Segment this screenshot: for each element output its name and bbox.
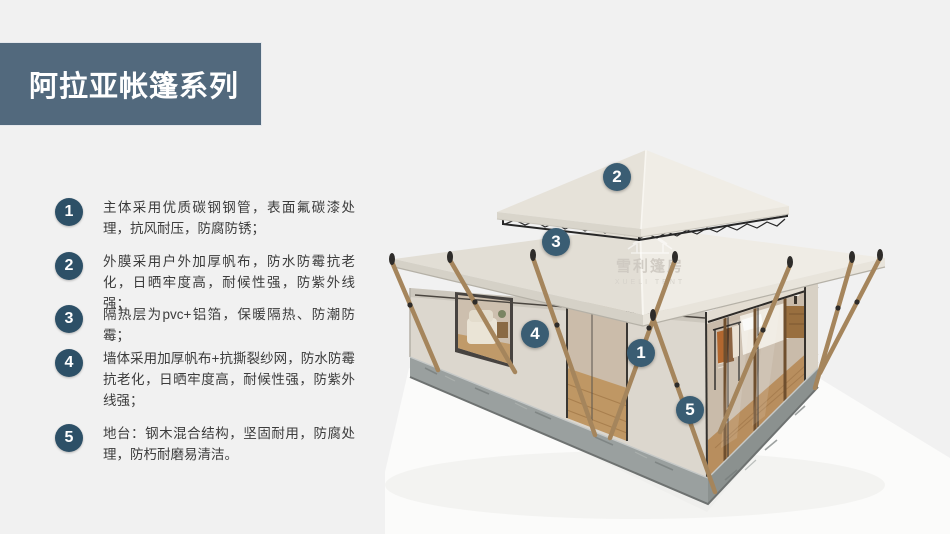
watermark-en-text: XUELI TENT [615, 279, 685, 286]
feature-number-badge: 4 [55, 349, 83, 377]
feature-text: 地台：钢木混合结构，坚固耐用，防腐处理，防朽耐磨易清洁。 [103, 423, 355, 465]
slide: 阿拉亚帐篷系列 1 主体采用优质碳钢钢管，表面氟碳漆处理，抗风耐压，防腐防锈； … [0, 0, 950, 534]
page-title: 阿拉亚帐篷系列 [0, 63, 239, 105]
title-banner: 阿拉亚帐篷系列 [0, 42, 262, 126]
feature-item: 5 地台：钢木混合结构，坚固耐用，防腐处理，防朽耐磨易清洁。 [55, 423, 355, 465]
callout-badge-1: 1 [627, 339, 655, 367]
callout-badge-5: 5 [676, 396, 704, 424]
callout-badge-3: 3 [542, 228, 570, 256]
callout-badge-4: 4 [521, 320, 549, 348]
callout-badge-2: 2 [603, 163, 631, 191]
feature-text: 主体采用优质碳钢钢管，表面氟碳漆处理，抗风耐压，防腐防锈； [103, 197, 355, 239]
tent-top-roof [497, 150, 789, 237]
feature-item: 3 隔热层为pvc+铝箔，保暖隔热、防潮防霉； [55, 304, 355, 346]
tent-illustration: 雪利篷房 XUELI TENT [385, 140, 950, 534]
feature-number-badge: 2 [55, 252, 83, 280]
feature-text: 墙体采用加厚帆布+抗撕裂纱网，防水防霉抗老化，日晒牢度高，耐候性强，防紫外线强； [103, 348, 355, 411]
feature-number-badge: 3 [55, 305, 83, 333]
feature-item: 4 墙体采用加厚帆布+抗撕裂纱网，防水防霉抗老化，日晒牢度高，耐候性强，防紫外线… [55, 348, 355, 411]
feature-number-badge: 5 [55, 424, 83, 452]
feature-item: 1 主体采用优质碳钢钢管，表面氟碳漆处理，抗风耐压，防腐防锈； [55, 197, 355, 239]
feature-number-badge: 1 [55, 198, 83, 226]
feature-text: 隔热层为pvc+铝箔，保暖隔热、防潮防霉； [103, 304, 355, 346]
